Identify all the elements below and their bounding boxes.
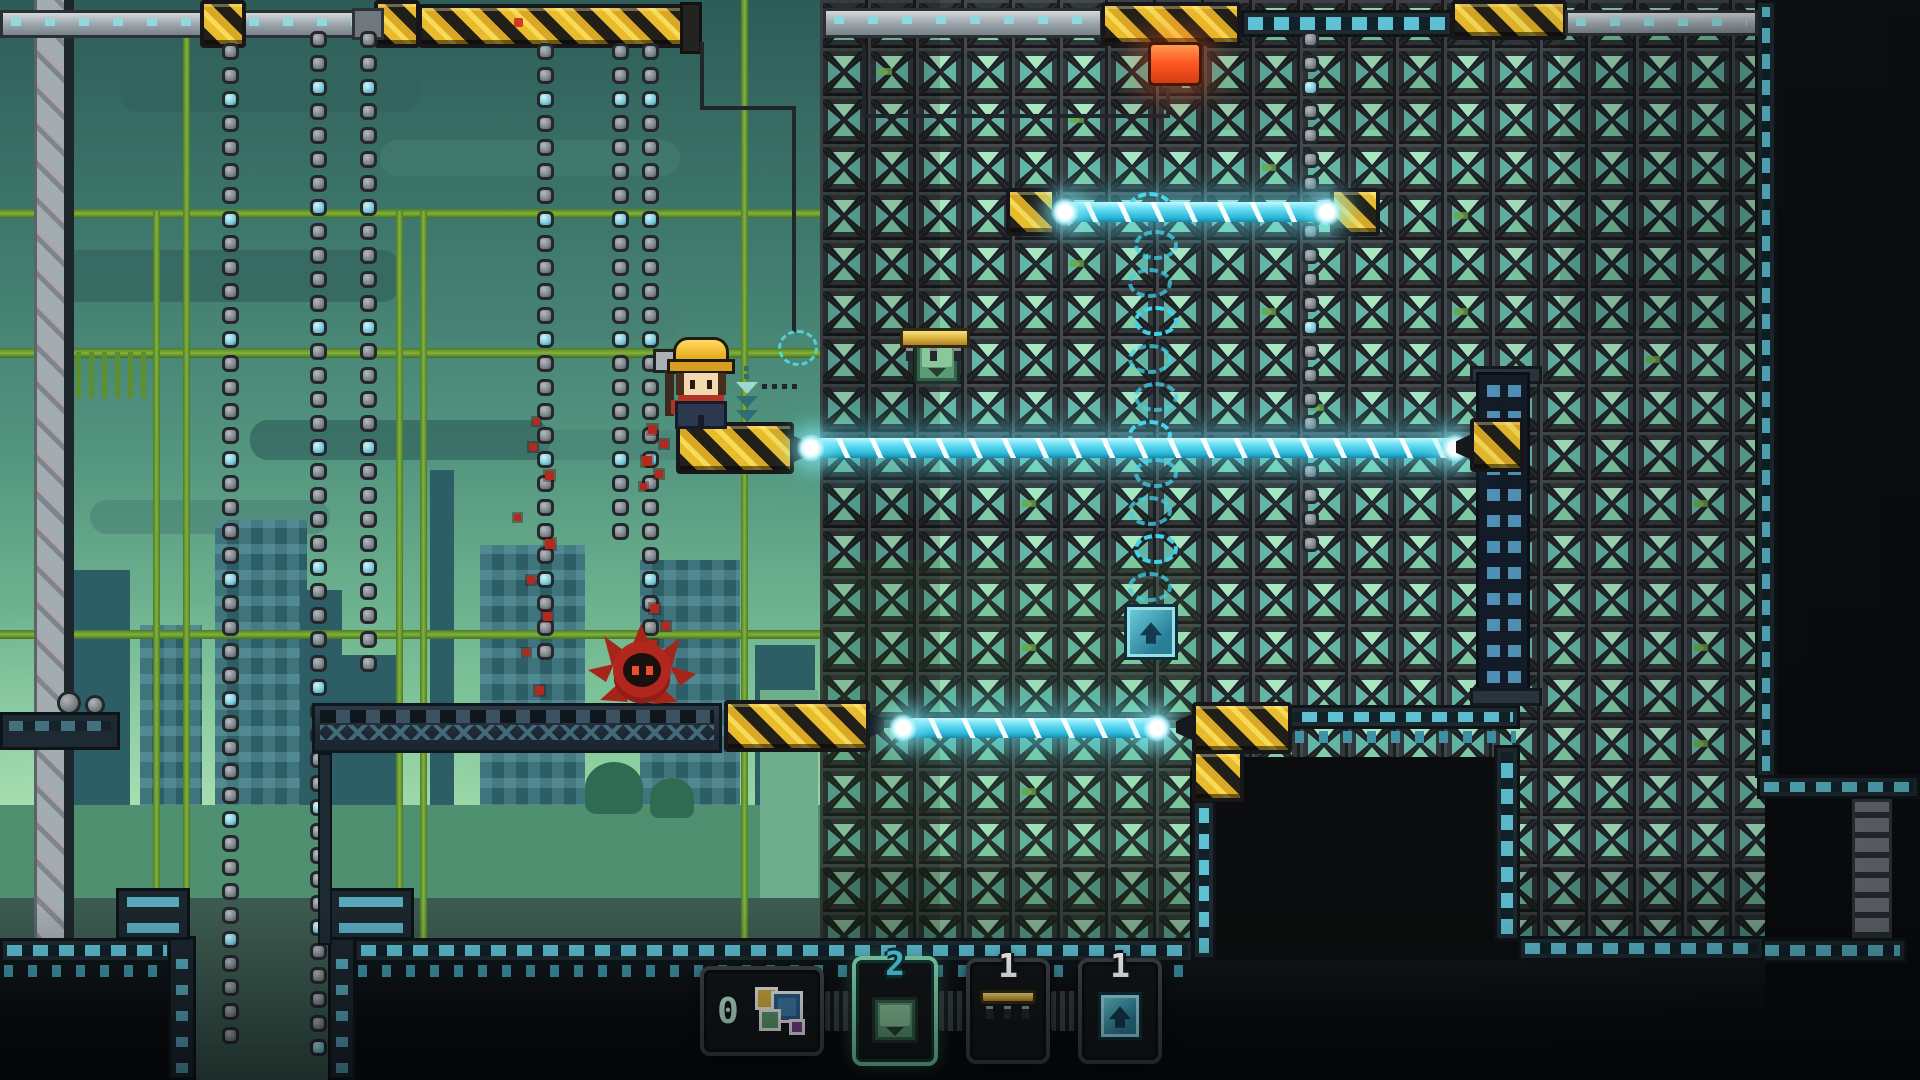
item-count: 1 (1110, 946, 1130, 985)
chain-bead (615, 166, 626, 177)
laser-emitter-corner (1192, 702, 1292, 754)
wall-top-rail (1565, 10, 1758, 36)
chain-bead (1305, 418, 1316, 429)
chain-bead (615, 286, 626, 297)
chain-bead (1305, 370, 1316, 381)
chain-bead (225, 478, 236, 489)
chain-bead (313, 34, 324, 45)
chain-bead (540, 334, 551, 345)
chain-bead (363, 490, 374, 501)
chain-bead (540, 142, 551, 153)
ledge-bracket (328, 888, 414, 940)
chain-bead (225, 382, 236, 393)
chain (614, 46, 626, 550)
chain-bead (645, 238, 656, 249)
energy-ring (1134, 306, 1178, 336)
chain-bead (1305, 106, 1316, 117)
hotbar-connector (825, 991, 851, 1031)
chain-bead (540, 430, 551, 441)
chain-bead (1305, 490, 1316, 501)
girder-light (514, 18, 523, 27)
chain-bead (313, 682, 324, 693)
chain-bead (363, 58, 374, 69)
blood-particle (543, 612, 552, 621)
chain-bead (1305, 466, 1316, 477)
chain-bead (313, 1042, 324, 1053)
leg-gap (698, 415, 704, 426)
chain-bead (363, 154, 374, 165)
laser-orb (888, 713, 918, 743)
chain-bead (363, 82, 374, 93)
pulley-wheel (60, 694, 78, 712)
chain-bead (615, 454, 626, 465)
chain-bead (313, 298, 324, 309)
chain-bead (225, 70, 236, 81)
chain-bead (225, 718, 236, 729)
fence-post (76, 352, 81, 398)
frame-mullion (183, 28, 190, 951)
hat-brim (670, 362, 732, 371)
ground-trim-mini (4, 965, 172, 977)
chain-bead (1305, 130, 1316, 141)
chain-bead (615, 238, 626, 249)
chain-bead (313, 442, 324, 453)
blood-particle (642, 456, 652, 466)
laser-emitter (1006, 188, 1056, 236)
chain-bead (313, 610, 324, 621)
chain-bead (363, 610, 374, 621)
laser-orb (1050, 197, 1080, 227)
chain (224, 46, 236, 1054)
chain-bead (1305, 178, 1316, 189)
hotbar-slot-platform[interactable]: 1 (966, 958, 1050, 1064)
hazard-beam (1101, 2, 1241, 46)
chain-bead (540, 550, 551, 561)
blood-particle (514, 514, 521, 521)
chain-bead (225, 358, 236, 369)
frame-mullion (420, 211, 427, 951)
item-count: 2 (885, 944, 905, 983)
laser-orb (1142, 713, 1172, 743)
chain-bead (1305, 58, 1316, 69)
wall-green-accent (1454, 212, 1468, 219)
chain-bead (225, 982, 236, 993)
chain-bead (1305, 298, 1316, 309)
chain-bead (645, 190, 656, 201)
frame-mullion (396, 211, 403, 951)
hotbar-connector (1051, 991, 1077, 1031)
blood-particle (545, 539, 555, 549)
chain-bead (313, 514, 324, 525)
platform-foot (930, 348, 937, 361)
tree (585, 762, 643, 814)
chain-bead (313, 82, 324, 93)
chain-bead (540, 214, 551, 225)
fence-post (115, 352, 120, 398)
chain-bead (225, 910, 236, 921)
energy-ring (1128, 268, 1172, 298)
chain-bead (363, 274, 374, 285)
chain-bead (225, 862, 236, 873)
chain-bead (313, 658, 324, 669)
eye (690, 380, 695, 389)
chain-bead (645, 118, 656, 129)
energy-ring (1134, 230, 1178, 260)
chain-bead (1305, 322, 1316, 333)
chain-bead (615, 142, 626, 153)
pit-pillar (168, 936, 196, 1080)
chain-bead (313, 130, 324, 141)
chain-bead (645, 70, 656, 81)
chain-bead (225, 694, 236, 705)
wire (792, 106, 796, 332)
frame-rail (0, 630, 822, 639)
hotbar-slot-jump-pad[interactable]: 1 (1078, 958, 1162, 1064)
chain-bead (225, 574, 236, 585)
chain-bead (313, 1018, 324, 1029)
chain-bead (540, 166, 551, 177)
chain-bead (540, 46, 551, 57)
chain-bead (645, 262, 656, 273)
chain-bead (540, 574, 551, 585)
chain-bead (225, 1006, 236, 1017)
chain-bead (225, 262, 236, 273)
chain-bead (225, 286, 236, 297)
chain-bead (225, 646, 236, 657)
void-strut (1852, 799, 1892, 941)
blood-particle (650, 604, 659, 613)
chain-bead (313, 106, 324, 117)
chain (1304, 34, 1316, 562)
pipe-platform (0, 712, 120, 750)
item-count: 1 (998, 946, 1018, 985)
indicator-dot (772, 384, 777, 389)
chain-bead (363, 538, 374, 549)
chain-bead (363, 370, 374, 381)
indicator-dash (744, 374, 749, 379)
blood-particle (527, 576, 535, 584)
chain-bead (363, 34, 374, 45)
opening-trim-left (1192, 800, 1216, 960)
chain-bead (615, 190, 626, 201)
chain-bead (645, 526, 656, 537)
cloud (120, 70, 420, 112)
blood-particle (533, 418, 540, 425)
chain-bead (225, 622, 236, 633)
chain-bead (225, 838, 236, 849)
blood-particle (648, 425, 657, 434)
chain-bead (313, 586, 324, 597)
chain-bead (225, 886, 236, 897)
chain-bead (225, 814, 236, 825)
energy-ring (1128, 344, 1172, 374)
chain-bead (615, 262, 626, 273)
chain-bead (313, 394, 324, 405)
chain-bead (225, 214, 236, 225)
chain-bead (313, 346, 324, 357)
indicator-dot (792, 384, 797, 389)
chain (362, 34, 374, 682)
void-ledge (1757, 775, 1920, 799)
blood-particle (655, 470, 663, 478)
chain-bead (645, 46, 656, 57)
chain-bead (540, 454, 551, 465)
chain-bead (615, 430, 626, 441)
chain-bead (540, 526, 551, 537)
chain-bead (645, 166, 656, 177)
crate-icon (872, 997, 918, 1043)
wire (862, 114, 1168, 118)
chain-bead (645, 550, 656, 561)
chain-bead (540, 502, 551, 513)
chain-bead (645, 214, 656, 225)
blood-particle (660, 440, 668, 448)
game-viewport: 0 2 1 1 (0, 0, 1920, 1080)
laser-beam-top (1060, 202, 1332, 222)
platform-foot (954, 348, 961, 361)
energy-ring (1128, 496, 1172, 526)
hazard-beam (1451, 0, 1567, 40)
wall-green-accent (1022, 788, 1036, 795)
top-rail (0, 10, 382, 38)
player-platform-emitter (676, 422, 794, 474)
chain-bead (540, 190, 551, 201)
chain-bead (363, 346, 374, 357)
hair (676, 373, 684, 395)
chain-bead (313, 370, 324, 381)
chain-bead (615, 334, 626, 345)
opening-trim-right (1494, 745, 1520, 941)
energy-ring (1134, 534, 1178, 564)
wall-green-accent (1022, 644, 1036, 651)
chain-bead (225, 766, 236, 777)
hazard-girder (418, 4, 692, 48)
chain-bead (1305, 514, 1316, 525)
fence-post (141, 352, 146, 398)
hard-hat (676, 340, 726, 364)
chain-bead (313, 58, 324, 69)
wall-green-accent (1454, 308, 1468, 315)
chain-bead (363, 418, 374, 429)
chain-bead (363, 202, 374, 213)
wall-green-accent (1694, 644, 1708, 651)
chain-bead (225, 238, 236, 249)
indicator-dot (762, 384, 767, 389)
chain-bead (1305, 538, 1316, 549)
tree (650, 778, 694, 818)
chain-bead (615, 502, 626, 513)
chain-bead (363, 130, 374, 141)
chain-bead (363, 562, 374, 573)
wire (862, 44, 866, 116)
chain-bead (615, 70, 626, 81)
chain-bead (615, 382, 626, 393)
void-right (1765, 0, 1920, 1080)
chain-bead (225, 310, 236, 321)
chain-bead (1305, 82, 1316, 93)
hotbar-connector (939, 991, 965, 1031)
pulley-wheel (88, 698, 102, 712)
energy-ring (1134, 382, 1178, 412)
chain-bead (225, 166, 236, 177)
girder-cap (680, 2, 702, 54)
red-lamp (1148, 42, 1202, 86)
chain-bead (225, 598, 236, 609)
laser-emitter (1470, 418, 1524, 472)
chain-bead (225, 118, 236, 129)
indicator-dot (782, 384, 787, 389)
chain-bead (1305, 226, 1316, 237)
chain-bead (313, 562, 324, 573)
spike-enemy (586, 620, 698, 720)
chain-bead (540, 262, 551, 273)
fence-post (89, 352, 94, 398)
chain-bead (363, 106, 374, 117)
laser-beam-bottom (904, 718, 1162, 738)
chain-bead (645, 94, 656, 105)
chain-bead (363, 466, 374, 477)
chain-bead (313, 994, 324, 1005)
chain-bead (225, 94, 236, 105)
chain-bead (540, 406, 551, 417)
frame-edge (64, 0, 74, 952)
chain-bead (615, 214, 626, 225)
platform-foot (906, 348, 913, 361)
chain-bead (313, 970, 324, 981)
indicator-dash (744, 366, 749, 371)
chain-bead (615, 526, 626, 537)
hotbar: 0 2 1 1 (700, 956, 1162, 1066)
pillar-cap (1470, 688, 1542, 706)
chain-bead (540, 70, 551, 81)
void-ledge (1757, 938, 1907, 963)
fence-post (128, 352, 133, 398)
chain (539, 46, 551, 670)
wall-green-accent (1694, 500, 1708, 507)
chain-bead (363, 322, 374, 333)
chain-bead (540, 118, 551, 129)
chain-bead (313, 538, 324, 549)
chain-bead (225, 142, 236, 153)
chain-bead (225, 550, 236, 561)
chain-bead (363, 178, 374, 189)
chain-bead (540, 622, 551, 633)
chain-bead (645, 286, 656, 297)
chain-bead (313, 274, 324, 285)
hair (718, 373, 726, 395)
chain-bead (313, 178, 324, 189)
frame-rail (0, 209, 822, 218)
chain-bead (225, 46, 236, 57)
chain-bead (645, 310, 656, 321)
ledge-bracket (116, 888, 190, 940)
chain-bead (363, 250, 374, 261)
wall-top-trim (1241, 10, 1453, 37)
laser-orb (796, 433, 826, 463)
chain-bead (540, 358, 551, 369)
chain-bead (645, 574, 656, 585)
laser-emitter (724, 700, 870, 752)
hotbar-slot-blueprint[interactable]: 0 (700, 966, 824, 1056)
laser-beam-middle (812, 438, 1460, 458)
chain-bead (225, 190, 236, 201)
chain-bead (225, 934, 236, 945)
chain-bead (225, 502, 236, 513)
wall-green-accent (1022, 500, 1036, 507)
fence-post (102, 352, 107, 398)
cloud (380, 140, 680, 176)
hazard-block (200, 0, 246, 48)
blood-particle (523, 649, 530, 656)
layers-icon (751, 983, 807, 1039)
chain-bead (225, 1030, 236, 1041)
chain-bead (615, 46, 626, 57)
chain-bead (225, 670, 236, 681)
wall-green-accent (878, 68, 892, 75)
chain-bead (313, 322, 324, 333)
energy-ring (1128, 572, 1172, 602)
chain-bead (363, 586, 374, 597)
placed-platform (900, 328, 970, 348)
chain-bead (1305, 346, 1316, 357)
chain-bead (225, 406, 236, 417)
laser-emitter-corner (1192, 750, 1244, 802)
chain-bead (615, 118, 626, 129)
wall-edge-trim (1755, 0, 1777, 778)
player-character (648, 338, 740, 426)
wall-green-accent (1262, 164, 1276, 171)
ground-trim (1518, 936, 1765, 961)
ghost-placement-circle (778, 330, 818, 366)
chain-bead (313, 154, 324, 165)
chain-bead (225, 526, 236, 537)
chain-bead (225, 430, 236, 441)
wall-green-accent (1070, 260, 1084, 267)
chain-bead (645, 502, 656, 513)
chain-bead (363, 226, 374, 237)
chain-bead (313, 202, 324, 213)
wall-green-accent (1262, 308, 1276, 315)
chain-bead (540, 310, 551, 321)
platform-support (318, 753, 332, 945)
jump-pad-icon (1098, 992, 1142, 1040)
chain-bead (645, 142, 656, 153)
chain-bead (225, 454, 236, 465)
laser-orb (1312, 197, 1342, 227)
chain-bead (1305, 34, 1316, 45)
chain-bead (615, 406, 626, 417)
chain-bead (363, 634, 374, 645)
wire (700, 106, 796, 110)
chain-bead (313, 226, 324, 237)
ground-trim (0, 938, 174, 963)
wall-green-accent (1694, 740, 1708, 747)
chain-bead (313, 466, 324, 477)
frame-mullion (153, 211, 160, 951)
chain-bead (313, 634, 324, 645)
jump-pad (1124, 604, 1178, 660)
wall-top-rail (823, 8, 1103, 38)
blood-particle (640, 483, 647, 490)
chain-bead (615, 478, 626, 489)
zero-count-glyph: 0 (717, 991, 739, 1032)
chain-bead (615, 358, 626, 369)
chain-bead (540, 286, 551, 297)
hotbar-slot-crate[interactable]: 2 (852, 956, 938, 1066)
chain-bead (1305, 250, 1316, 261)
chain-bead (363, 442, 374, 453)
platform-icon (980, 990, 1036, 1024)
